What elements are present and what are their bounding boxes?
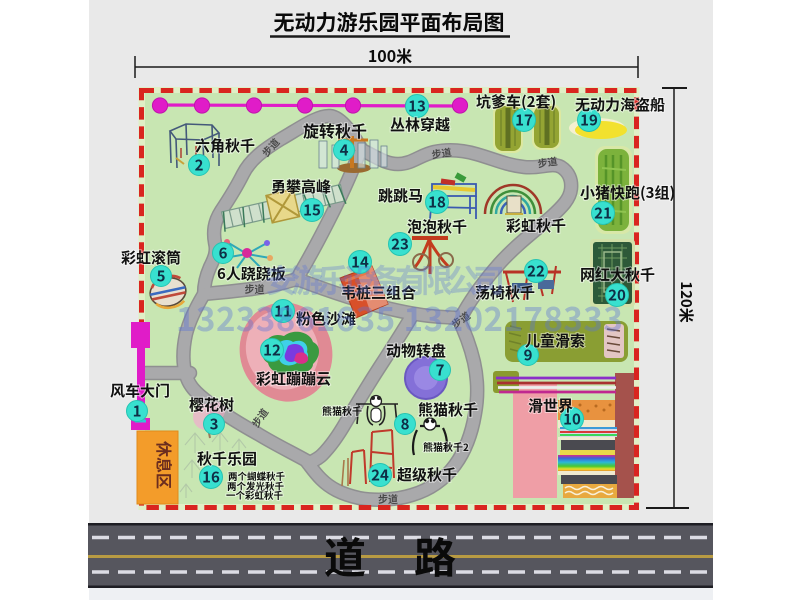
svg-text:熊猫秋千2: 熊猫秋千2 bbox=[423, 439, 469, 454]
svg-text:24: 24 bbox=[371, 464, 389, 485]
svg-text:100米: 100米 bbox=[368, 43, 412, 67]
svg-text:2: 2 bbox=[195, 154, 204, 175]
svg-text:步道: 步道 bbox=[430, 144, 452, 162]
svg-text:泡泡秋千: 泡泡秋千 bbox=[407, 216, 467, 237]
svg-text:旋转秋千: 旋转秋千 bbox=[303, 118, 367, 142]
svg-text:17: 17 bbox=[515, 109, 533, 130]
svg-text:勇攀高峰: 勇攀高峰 bbox=[271, 176, 331, 197]
svg-text:跳跳马: 跳跳马 bbox=[378, 185, 423, 206]
svg-text:超级秋千: 超级秋千 bbox=[397, 464, 457, 485]
svg-text:秋千乐园: 秋千乐园 bbox=[197, 448, 257, 469]
svg-text:动物转盘: 动物转盘 bbox=[386, 340, 446, 361]
svg-text:网红大秋千: 网红大秋千 bbox=[580, 264, 655, 285]
svg-text:风车大门: 风车大门 bbox=[110, 380, 170, 401]
svg-text:小猪快跑(3组): 小猪快跑(3组) bbox=[580, 182, 675, 203]
svg-text:丛林穿越: 丛林穿越 bbox=[390, 114, 450, 135]
svg-text:滑世界: 滑世界 bbox=[528, 395, 573, 416]
svg-text:樱花树: 樱花树 bbox=[189, 394, 234, 415]
svg-text:无动力游乐园平面布局图: 无动力游乐园平面布局图 bbox=[274, 7, 505, 37]
svg-text:彩虹蹦蹦云: 彩虹蹦蹦云 bbox=[256, 368, 331, 389]
svg-text:22: 22 bbox=[527, 260, 545, 281]
svg-text:熊猫秋千: 熊猫秋千 bbox=[418, 399, 478, 420]
svg-text:1: 1 bbox=[133, 400, 142, 421]
svg-text:步道: 步道 bbox=[378, 491, 398, 506]
svg-text:5: 5 bbox=[157, 265, 166, 286]
svg-text:13233861635 13202178333: 13233861635 13202178333 bbox=[176, 293, 623, 341]
svg-text:彩虹秋千: 彩虹秋千 bbox=[506, 215, 566, 236]
svg-text:彩虹滚筒: 彩虹滚筒 bbox=[121, 247, 181, 268]
svg-text:21: 21 bbox=[594, 202, 612, 223]
svg-text:六角秋千: 六角秋千 bbox=[195, 135, 255, 156]
svg-text:16: 16 bbox=[202, 466, 220, 487]
svg-text:休息区: 休息区 bbox=[153, 441, 177, 489]
svg-text:无动力海盗船: 无动力海盗船 bbox=[575, 94, 665, 115]
svg-text:18: 18 bbox=[428, 191, 446, 212]
svg-text:一个彩虹秋千: 一个彩虹秋千 bbox=[226, 488, 284, 502]
svg-text:路: 路 bbox=[414, 525, 456, 586]
svg-text:120米: 120米 bbox=[676, 281, 697, 323]
svg-text:熊猫秋千: 熊猫秋千 bbox=[322, 403, 362, 418]
svg-text:步道: 步道 bbox=[536, 153, 558, 171]
svg-text:3: 3 bbox=[210, 413, 219, 434]
svg-text:7: 7 bbox=[436, 359, 445, 380]
svg-text:道: 道 bbox=[324, 525, 366, 586]
svg-text:8: 8 bbox=[401, 413, 410, 434]
svg-text:12: 12 bbox=[263, 339, 281, 360]
svg-text:6: 6 bbox=[219, 242, 228, 263]
svg-text:15: 15 bbox=[303, 199, 321, 220]
svg-text:坑爹车(2套): 坑爹车(2套) bbox=[476, 91, 556, 112]
svg-text:4: 4 bbox=[340, 139, 349, 160]
